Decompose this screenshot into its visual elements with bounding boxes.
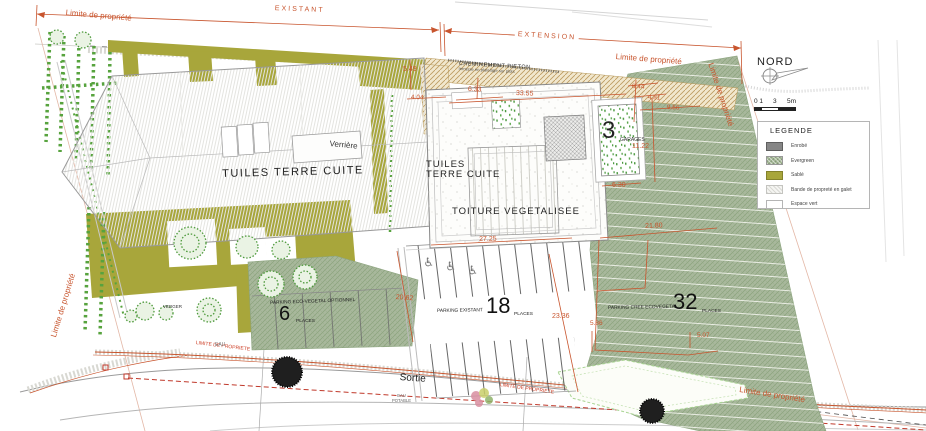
legend-item-enrobe: Enrobé — [766, 139, 869, 154]
garages-count: 3 — [602, 118, 615, 144]
legend-label: Evergreen — [791, 158, 814, 164]
scale-3: 3 — [773, 98, 777, 105]
parking-eco-count: 6 — [279, 303, 290, 325]
wheelchair-icon: ♿ — [445, 260, 457, 274]
legend-swatch-bande — [766, 185, 783, 194]
wheelchair-icon: ♿ — [423, 256, 435, 270]
eau-potable-line2: POTABLE — [392, 399, 411, 404]
parking-eco-places: PLACES — [296, 319, 315, 324]
eau-label: EAU — [215, 343, 225, 349]
legend-item-evergreen: Evergreen — [766, 154, 869, 169]
dim-20-62: 20.62 — [395, 294, 413, 303]
legend-box: LEGENDE Enrobé Evergreen Sablé Bande de … — [757, 121, 870, 209]
legend-label: Sablé — [791, 172, 804, 178]
dim-9-56: 9.56 — [667, 104, 680, 112]
legend-item-bande: Bande de propreté en galet — [766, 183, 869, 198]
legend-swatch-espace — [766, 200, 783, 209]
scale-5m: 5m — [787, 98, 796, 105]
dim-11-22: 11.22 — [632, 143, 649, 151]
dim-4-81: 4.81 — [648, 94, 661, 102]
tuiles-ext-line2: TERRE CUITE — [426, 170, 500, 180]
scale-0-1: 0 1 — [754, 98, 763, 105]
dim-23-36: 23.36 — [552, 313, 570, 321]
legend-title: LEGENDE — [770, 126, 869, 135]
dim-5-86: 5.86 — [590, 320, 603, 327]
dim-5-49: 5.49 — [403, 66, 417, 74]
wheelchair-icon: ♿ — [467, 264, 479, 278]
legend-label: Bande de propreté en galet — [791, 187, 852, 193]
legend-item-sable: Sablé — [766, 168, 869, 183]
dim-33-55: 33.55 — [516, 90, 534, 98]
nord-label: NORD — [757, 56, 793, 68]
dim-4-04: 4.04 — [411, 94, 424, 102]
sortie-label: Sortie — [399, 372, 426, 385]
toiture-vegetalisee-label: TOITURE VEGETALISEE — [452, 207, 580, 217]
site-plan: Limite de propriété Limite de propriété … — [0, 0, 926, 431]
north-arrow-icon — [745, 67, 870, 91]
legend-item-espace: Espace vert — [766, 197, 869, 212]
dim-6-44: 6.44 — [632, 83, 645, 91]
legend-label: Espace vert — [791, 201, 817, 207]
dim-21-80: 21.80 — [645, 222, 663, 230]
parking-existant-places: PLACES — [514, 312, 533, 317]
legend-swatch-sable — [766, 171, 783, 180]
tuiles-terre-cuite-ext-label: TUILES TERRE CUITE — [426, 160, 500, 181]
legend-swatch-evergreen — [766, 156, 783, 165]
parking-existant-count: 18 — [486, 294, 510, 318]
main-building-roof — [62, 58, 432, 248]
verger-label: VERGER — [163, 305, 182, 310]
parking-cree-count: 32 — [673, 290, 697, 314]
dim-6-30: 6.30 — [612, 182, 626, 190]
dim-6-33: 6.33 — [468, 86, 482, 94]
eau-potable-label: EAU POTABLE — [392, 394, 411, 403]
scale-bar-blocks — [754, 107, 796, 111]
dim-5-07: 5.07 — [697, 332, 710, 339]
dim-27-25: 27.25 — [479, 236, 497, 244]
legend-swatch-enrobe — [766, 142, 783, 151]
parking-existant-name: PARKING EXISTANT — [437, 308, 483, 314]
scale-bar: 0 1 3 5m — [754, 98, 814, 116]
parking-cree-places: PLACES — [702, 309, 721, 314]
legend-label: Enrobé — [791, 143, 807, 149]
